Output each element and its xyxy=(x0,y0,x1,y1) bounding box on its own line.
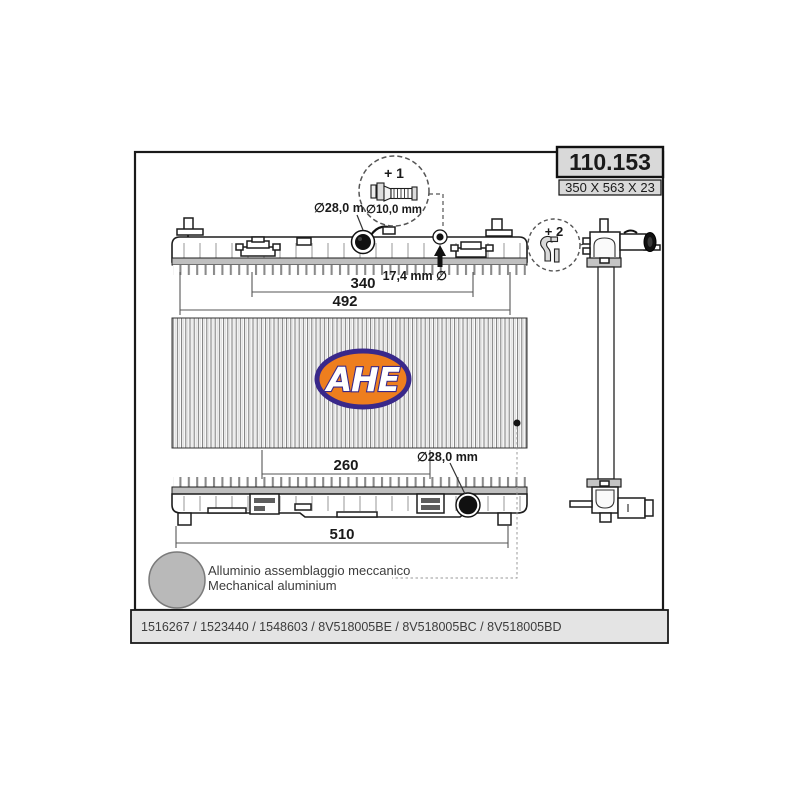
top-right-mounting-pin xyxy=(492,219,502,230)
side-bottom-plate-notch xyxy=(600,481,609,486)
bottom-tank-step-tab xyxy=(208,508,246,513)
top-left-mounting-pin xyxy=(184,218,193,230)
top-tank-tab xyxy=(297,238,311,245)
dim-top-outer: 492 xyxy=(332,293,357,310)
side-top-plate-notch xyxy=(600,258,609,263)
top-crimp-band xyxy=(172,258,527,265)
side-top-dome xyxy=(594,238,615,257)
detail-1-diameter-label: ∅10,0 mm xyxy=(366,204,422,216)
bottom-hose-port xyxy=(456,493,480,517)
logo-text: AHE xyxy=(324,360,401,399)
part-number: 110.153 xyxy=(569,149,651,175)
side-hose-bore xyxy=(648,237,653,247)
dim-bottom-inner: 260 xyxy=(333,457,358,474)
oe-numbers-text: 1516267 / 1523440 / 1548603 / 8V518005BE… xyxy=(141,620,562,634)
material-label-it: Alluminio assemblaggio meccanico xyxy=(208,563,410,578)
material-label-en: Mechanical aluminium xyxy=(208,578,337,593)
bottom-fin-ticks xyxy=(173,477,526,487)
side-bottom-dome xyxy=(596,490,614,508)
top-left-pin-plate xyxy=(177,229,203,235)
bottom-left-mounting-foot xyxy=(178,513,191,525)
side-bottom-hose-end xyxy=(645,500,653,516)
title-block: 110.153 350 X 563 X 23 xyxy=(557,147,663,195)
filler-diameter-label: 17,4 mm ∅ xyxy=(383,269,448,283)
detail-1-label: + 1 xyxy=(384,165,404,181)
side-top-hose xyxy=(620,234,646,250)
side-tab-2 xyxy=(583,248,590,254)
material-indicator-circle xyxy=(149,552,205,608)
side-bottom-bracket xyxy=(570,501,592,507)
side-bottom-foot xyxy=(600,513,611,522)
bottom-connector-right xyxy=(417,494,444,513)
radiator-front-view: AHE xyxy=(172,218,527,525)
filler-port xyxy=(433,230,447,244)
side-bottom-hose xyxy=(618,498,645,518)
catalog-page: AHE xyxy=(0,0,800,800)
ahe-logo: AHE xyxy=(317,351,409,407)
hose-tab xyxy=(383,227,395,234)
dim-bottom-outer: 510 xyxy=(329,526,354,543)
material-reference-dot xyxy=(514,420,521,427)
side-tab-1 xyxy=(583,238,590,244)
side-core-body xyxy=(598,267,614,479)
bottom-right-mounting-foot xyxy=(498,513,511,525)
bottom-tank-step-tab-2 xyxy=(337,512,377,517)
outlet-diameter-label: ∅28,0 mm xyxy=(417,450,478,464)
size-text: 350 X 563 X 23 xyxy=(565,180,655,195)
top-bracket-right xyxy=(451,242,493,257)
radiator-technical-drawing: AHE xyxy=(0,0,800,800)
dim-top-inner: 340 xyxy=(350,275,375,292)
top-right-pin-plate xyxy=(486,230,512,236)
side-top-pin xyxy=(600,219,608,232)
bottom-tank-tab xyxy=(295,504,311,510)
bottom-crimp-band xyxy=(172,487,527,494)
bottom-connector-left xyxy=(250,494,279,514)
